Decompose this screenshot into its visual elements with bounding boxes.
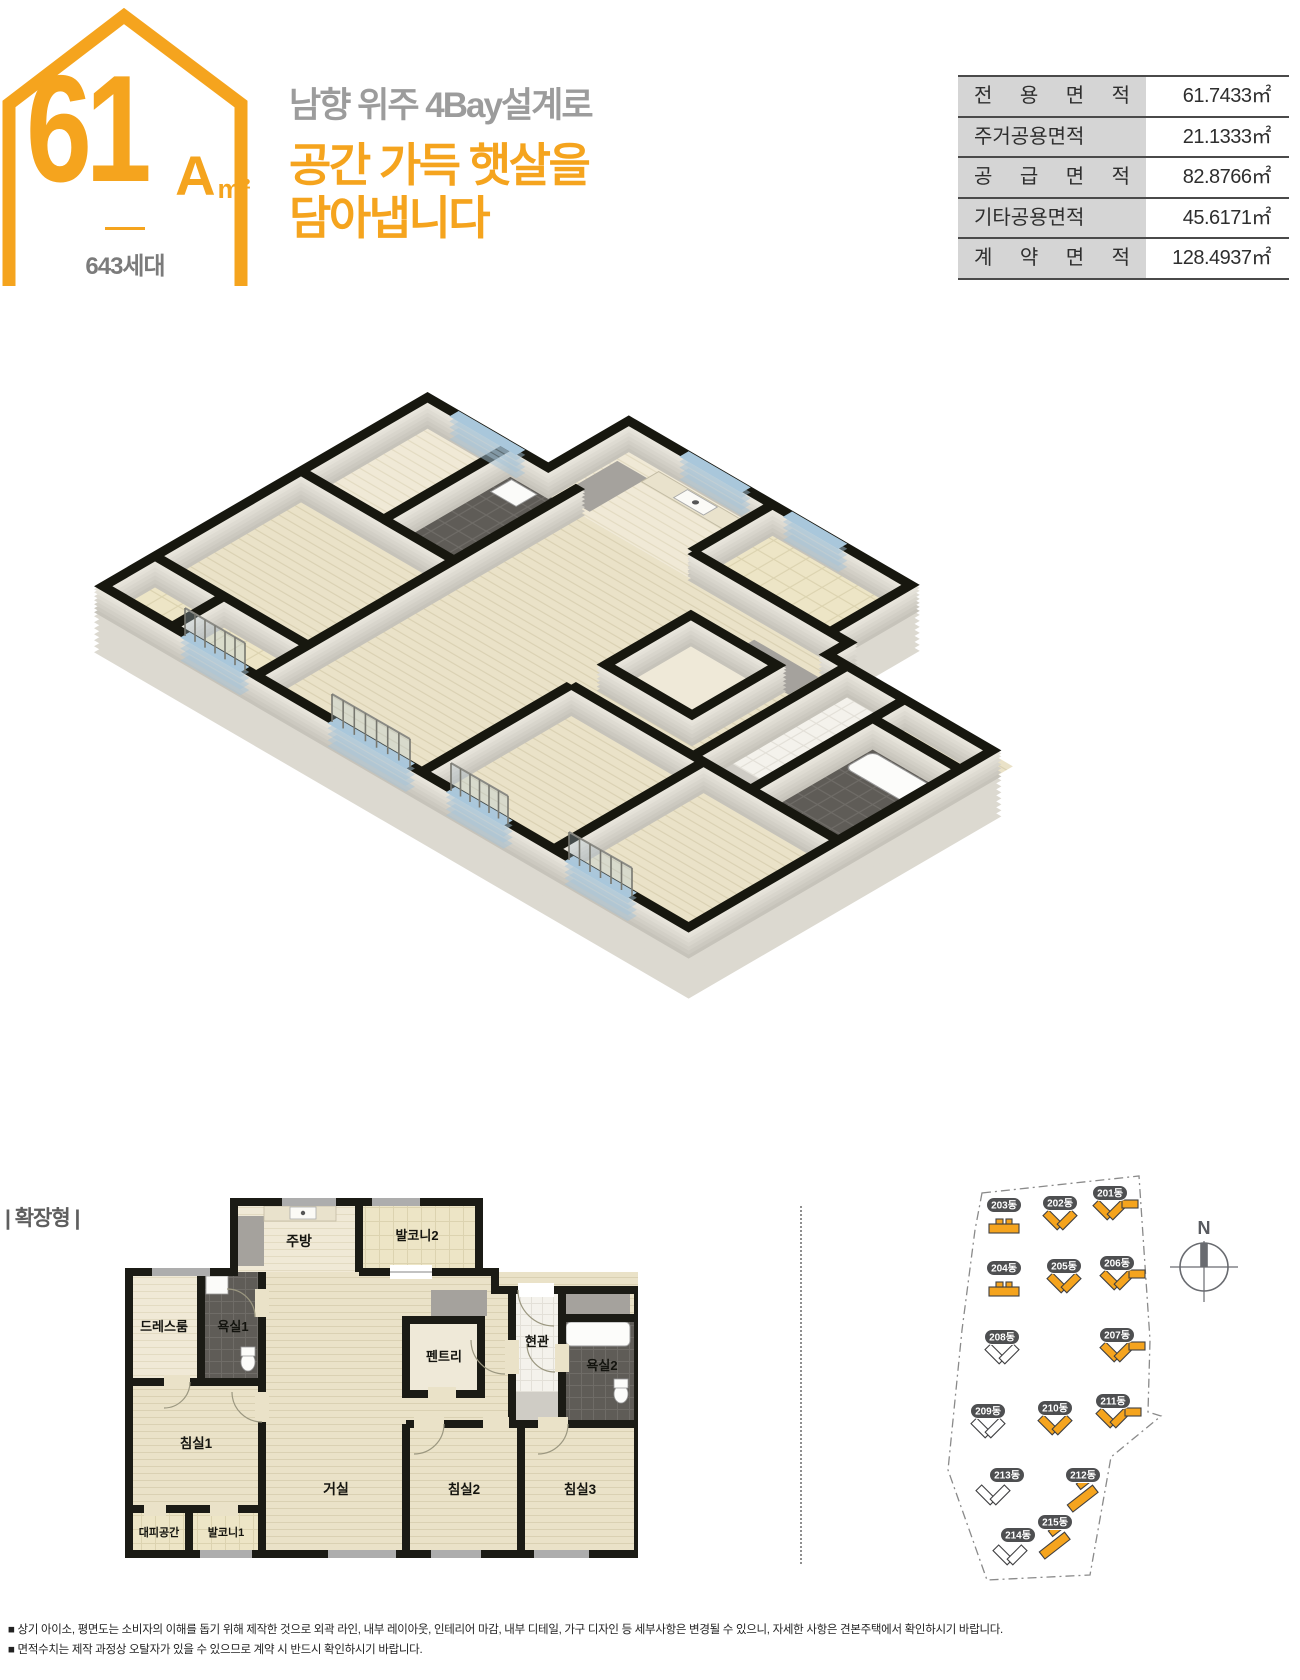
room-label: 펜트리: [426, 1349, 462, 1364]
headline-line-2: 담아냅니다: [289, 192, 592, 245]
disclaimer-line-1: ■ 상기 아이소, 평면도는 소비자의 이해를 돕기 위해 제작한 것으로 외곽…: [8, 1620, 1292, 1640]
unit-size-unit: m²: [218, 174, 251, 204]
room-label: 욕실2: [586, 1358, 617, 1373]
vertical-divider: [800, 1206, 802, 1564]
headline: 남향 위주 4Bay설계로 공간 가득 햇살을 담아냅니다: [289, 86, 592, 245]
svg-text:205동: 205동: [1051, 1261, 1077, 1273]
svg-text:207동: 207동: [1104, 1330, 1130, 1342]
room-label: 욕실1: [217, 1319, 248, 1334]
site-building: 201동: [1093, 1186, 1139, 1220]
room-label: 침실3: [564, 1482, 597, 1497]
unit-size: 61: [26, 54, 145, 204]
svg-text:201동: 201동: [1097, 1188, 1123, 1200]
area-table-row: 전 용 면 적61.7433㎡: [958, 77, 1289, 118]
room-label: 대피공간: [139, 1525, 179, 1539]
site-buildings: 203동202동201동204동205동206동208동207동209동210동…: [971, 1186, 1146, 1565]
room-label: 발코니1: [208, 1525, 244, 1539]
room-label: 거실: [323, 1481, 349, 1497]
site-building: 211동: [1096, 1394, 1142, 1428]
headline-line-1: 공간 가득 햇살을: [289, 139, 592, 192]
site-building: 213동: [976, 1468, 1024, 1505]
site-building: 209동: [971, 1404, 1006, 1438]
disclaimer: ■ 상기 아이소, 평면도는 소비자의 이해를 돕기 위해 제작한 것으로 외곽…: [8, 1620, 1292, 1660]
site-building: 212동: [1066, 1468, 1101, 1513]
area-table-row: 계 약 면 적128.4937㎡: [958, 239, 1289, 280]
area-table-row: 주거공용면적21.1333㎡: [958, 118, 1289, 159]
area-table-row: 기타공용면적45.6171㎡: [958, 199, 1289, 240]
svg-text:213동: 213동: [994, 1470, 1020, 1482]
site-building: 205동: [1047, 1259, 1082, 1293]
svg-text:211동: 211동: [1100, 1396, 1125, 1408]
compass-icon: N: [1170, 1218, 1238, 1302]
section-label: | 확장형 |: [5, 1202, 79, 1232]
room-label: 주방: [286, 1233, 312, 1249]
room-label: 발코니2: [395, 1228, 438, 1243]
floorplan-3d-render: [55, 390, 1055, 1055]
site-building: 214동: [993, 1528, 1035, 1565]
svg-text:210동: 210동: [1042, 1403, 1068, 1415]
svg-text:215동: 215동: [1042, 1517, 1068, 1529]
area-table: 전 용 면 적61.7433㎡주거공용면적21.1333㎡공 급 면 적82.8…: [958, 75, 1289, 280]
site-building: 215동: [1038, 1515, 1073, 1560]
svg-text:N: N: [1198, 1218, 1211, 1238]
floorplan-2d: 주방발코니2드레스룸욕실1펜트리현관욕실2침실1거실침실2침실3대피공간발코니1: [114, 1194, 638, 1571]
site-map: 203동202동201동204동205동206동208동207동209동210동…: [865, 1120, 1300, 1595]
svg-text:212동: 212동: [1070, 1470, 1096, 1482]
svg-text:206동: 206동: [1104, 1258, 1130, 1270]
svg-text:208동: 208동: [989, 1332, 1015, 1344]
room-label: 침실1: [180, 1436, 213, 1451]
room-label: 현관: [525, 1334, 549, 1349]
households-count: 643세대: [2, 246, 248, 281]
svg-text:209동: 209동: [975, 1406, 1001, 1418]
unit-variant: A: [175, 148, 215, 204]
room-label: 침실2: [448, 1482, 480, 1497]
site-building: 207동: [1100, 1328, 1146, 1362]
households-divider: [105, 227, 145, 230]
svg-text:203동: 203동: [991, 1200, 1017, 1212]
site-building: 210동: [1038, 1401, 1073, 1435]
svg-text:204동: 204동: [991, 1263, 1017, 1275]
svg-text:202동: 202동: [1047, 1198, 1073, 1210]
site-building: 206동: [1100, 1256, 1146, 1290]
room-label: 드레스룸: [140, 1319, 188, 1334]
disclaimer-line-2: ■ 면적수치는 제작 과정상 오탈자가 있을 수 있으므로 계약 시 반드시 확…: [8, 1640, 1292, 1660]
unit-type-badge: 61 A m² 643세대: [2, 8, 248, 292]
area-table-row: 공 급 면 적82.8766㎡: [958, 158, 1289, 199]
headline-subtitle: 남향 위주 4Bay설계로: [289, 86, 592, 126]
site-building: 204동: [987, 1261, 1022, 1297]
svg-text:214동: 214동: [1005, 1530, 1031, 1542]
site-building: 208동: [985, 1330, 1020, 1364]
brochure-page: 61 A m² 643세대 남향 위주 4Bay설계로 공간 가득 햇살을 담아…: [0, 0, 1300, 1680]
site-building: 203동: [987, 1198, 1022, 1234]
site-building: 202동: [1043, 1196, 1078, 1230]
